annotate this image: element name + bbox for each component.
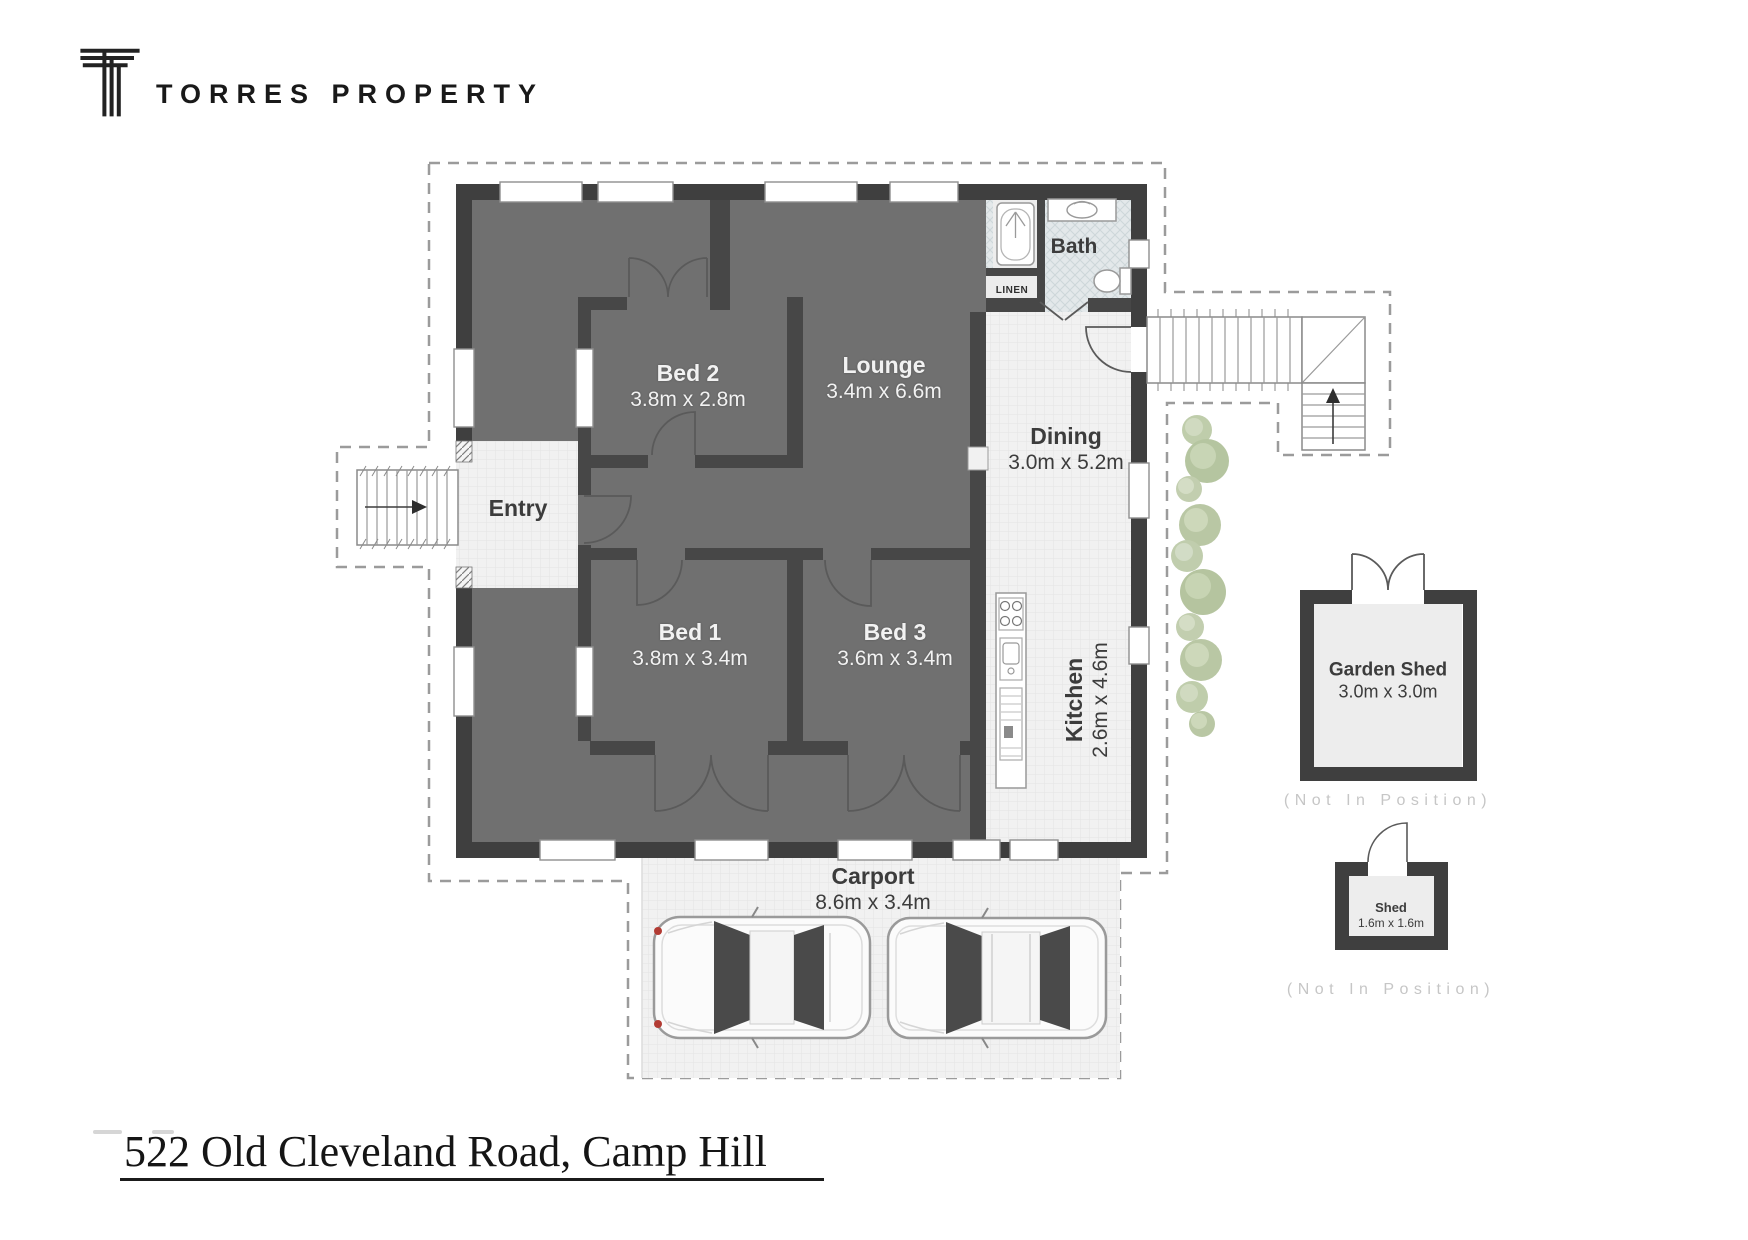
garden-plants — [1171, 415, 1229, 737]
room-label-bed3: Bed 3 3.6m x 3.4m — [837, 618, 953, 672]
note-shed-not-in-position: (Not In Position) — [1287, 981, 1495, 999]
floorplan-page: TORRES PROPERTY Entry Bed 2 3.8m x 2.8m … — [0, 0, 1748, 1240]
shed-structure — [1335, 823, 1448, 950]
room-label-bed1: Bed 1 3.8m x 3.4m — [632, 618, 748, 672]
label-garden-shed: Garden Shed 3.0m x 3.0m — [1329, 658, 1447, 703]
garden-shed-doors — [1352, 554, 1424, 590]
address-underline — [120, 1178, 824, 1181]
room-label-bed2: Bed 2 3.8m x 2.8m — [630, 359, 746, 413]
car1-rear-window — [794, 925, 824, 1030]
bathtub-icon — [997, 203, 1034, 265]
room-label-bath: Bath — [1051, 234, 1098, 260]
car1-windshield — [714, 921, 750, 1034]
note-garden-shed-not-in-position: (Not In Position) — [1284, 792, 1492, 810]
brand-header: TORRES PROPERTY — [78, 46, 544, 118]
brand-name: TORRES PROPERTY — [156, 79, 544, 118]
car-1 — [654, 907, 870, 1048]
room-label-carport: Carport 8.6m x 3.4m — [815, 862, 931, 916]
car2-windshield — [946, 922, 982, 1034]
car1-tail-light — [654, 927, 662, 935]
back-stairs — [1147, 309, 1365, 450]
property-address: 522 Old Cleveland Road, Camp Hill — [124, 1126, 767, 1177]
room-label-lounge: Lounge 3.4m x 6.6m — [826, 351, 942, 405]
entry-stairs — [357, 466, 458, 549]
torres-property-logo-icon — [78, 46, 142, 118]
room-label-entry: Entry — [489, 494, 548, 522]
room-label-dining: Dining 3.0m x 5.2m — [1008, 422, 1124, 476]
car-2 — [888, 908, 1106, 1048]
sink-icon — [1048, 199, 1116, 221]
label-shed: Shed 1.6m x 1.6m — [1358, 900, 1424, 930]
car2-rear-window — [1040, 926, 1070, 1030]
servery-niche — [968, 447, 988, 470]
car1-tail-light — [654, 1020, 662, 1028]
toilet-icon — [1094, 268, 1131, 294]
footer-artifact — [93, 1130, 122, 1134]
room-label-linen: LINEN — [996, 285, 1029, 297]
shed-door — [1368, 823, 1407, 862]
kitchen-bench-icon — [996, 593, 1026, 788]
room-label-kitchen: Kitchen 2.6m x 4.6m — [1060, 642, 1114, 758]
